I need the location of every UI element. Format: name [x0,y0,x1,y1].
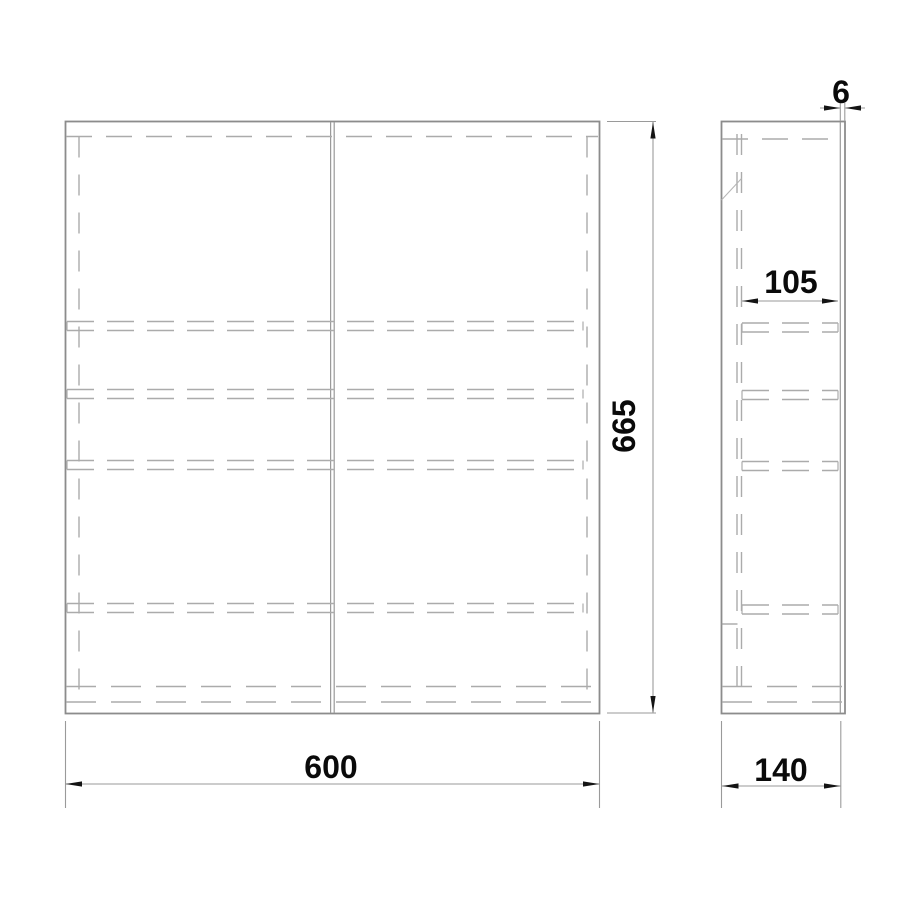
side-view-outline [722,122,846,714]
hanging-bracket-diagonal-line [722,179,742,201]
dimension-arrow-right-icon [583,781,600,786]
side-shelf-3-hidden-lines [742,462,838,471]
front-view-outline [66,122,600,714]
shelf-4-hidden-lines [67,604,583,613]
side-shelf-2-hidden-lines [742,391,838,400]
door-thickness-dimension-label: 6 [816,76,866,108]
dimension-arrow-left-icon [66,781,83,786]
shelf-3-hidden-lines [67,461,583,470]
depth-dimension-label: 140 [731,754,831,786]
inner-depth-dimension-label: 105 [741,266,841,298]
dimension-arrow-down-icon [650,696,655,713]
drawing-canvas: 600 665 140 105 6 [0,0,900,899]
width-dimension-label: 600 [281,751,381,783]
height-dimension-label: 665 [608,376,640,476]
dimension-arrow-left-icon [742,298,758,303]
front-view [66,122,600,714]
dimension-arrow-right-icon [822,298,838,303]
dimension-arrow-up-icon [650,122,655,139]
side-shelf-4-hidden-lines [742,605,838,614]
side-shelf-1-hidden-lines [742,323,838,332]
side-view [722,122,846,714]
shelf-1-hidden-lines [67,322,583,331]
shelf-2-hidden-lines [67,390,583,399]
